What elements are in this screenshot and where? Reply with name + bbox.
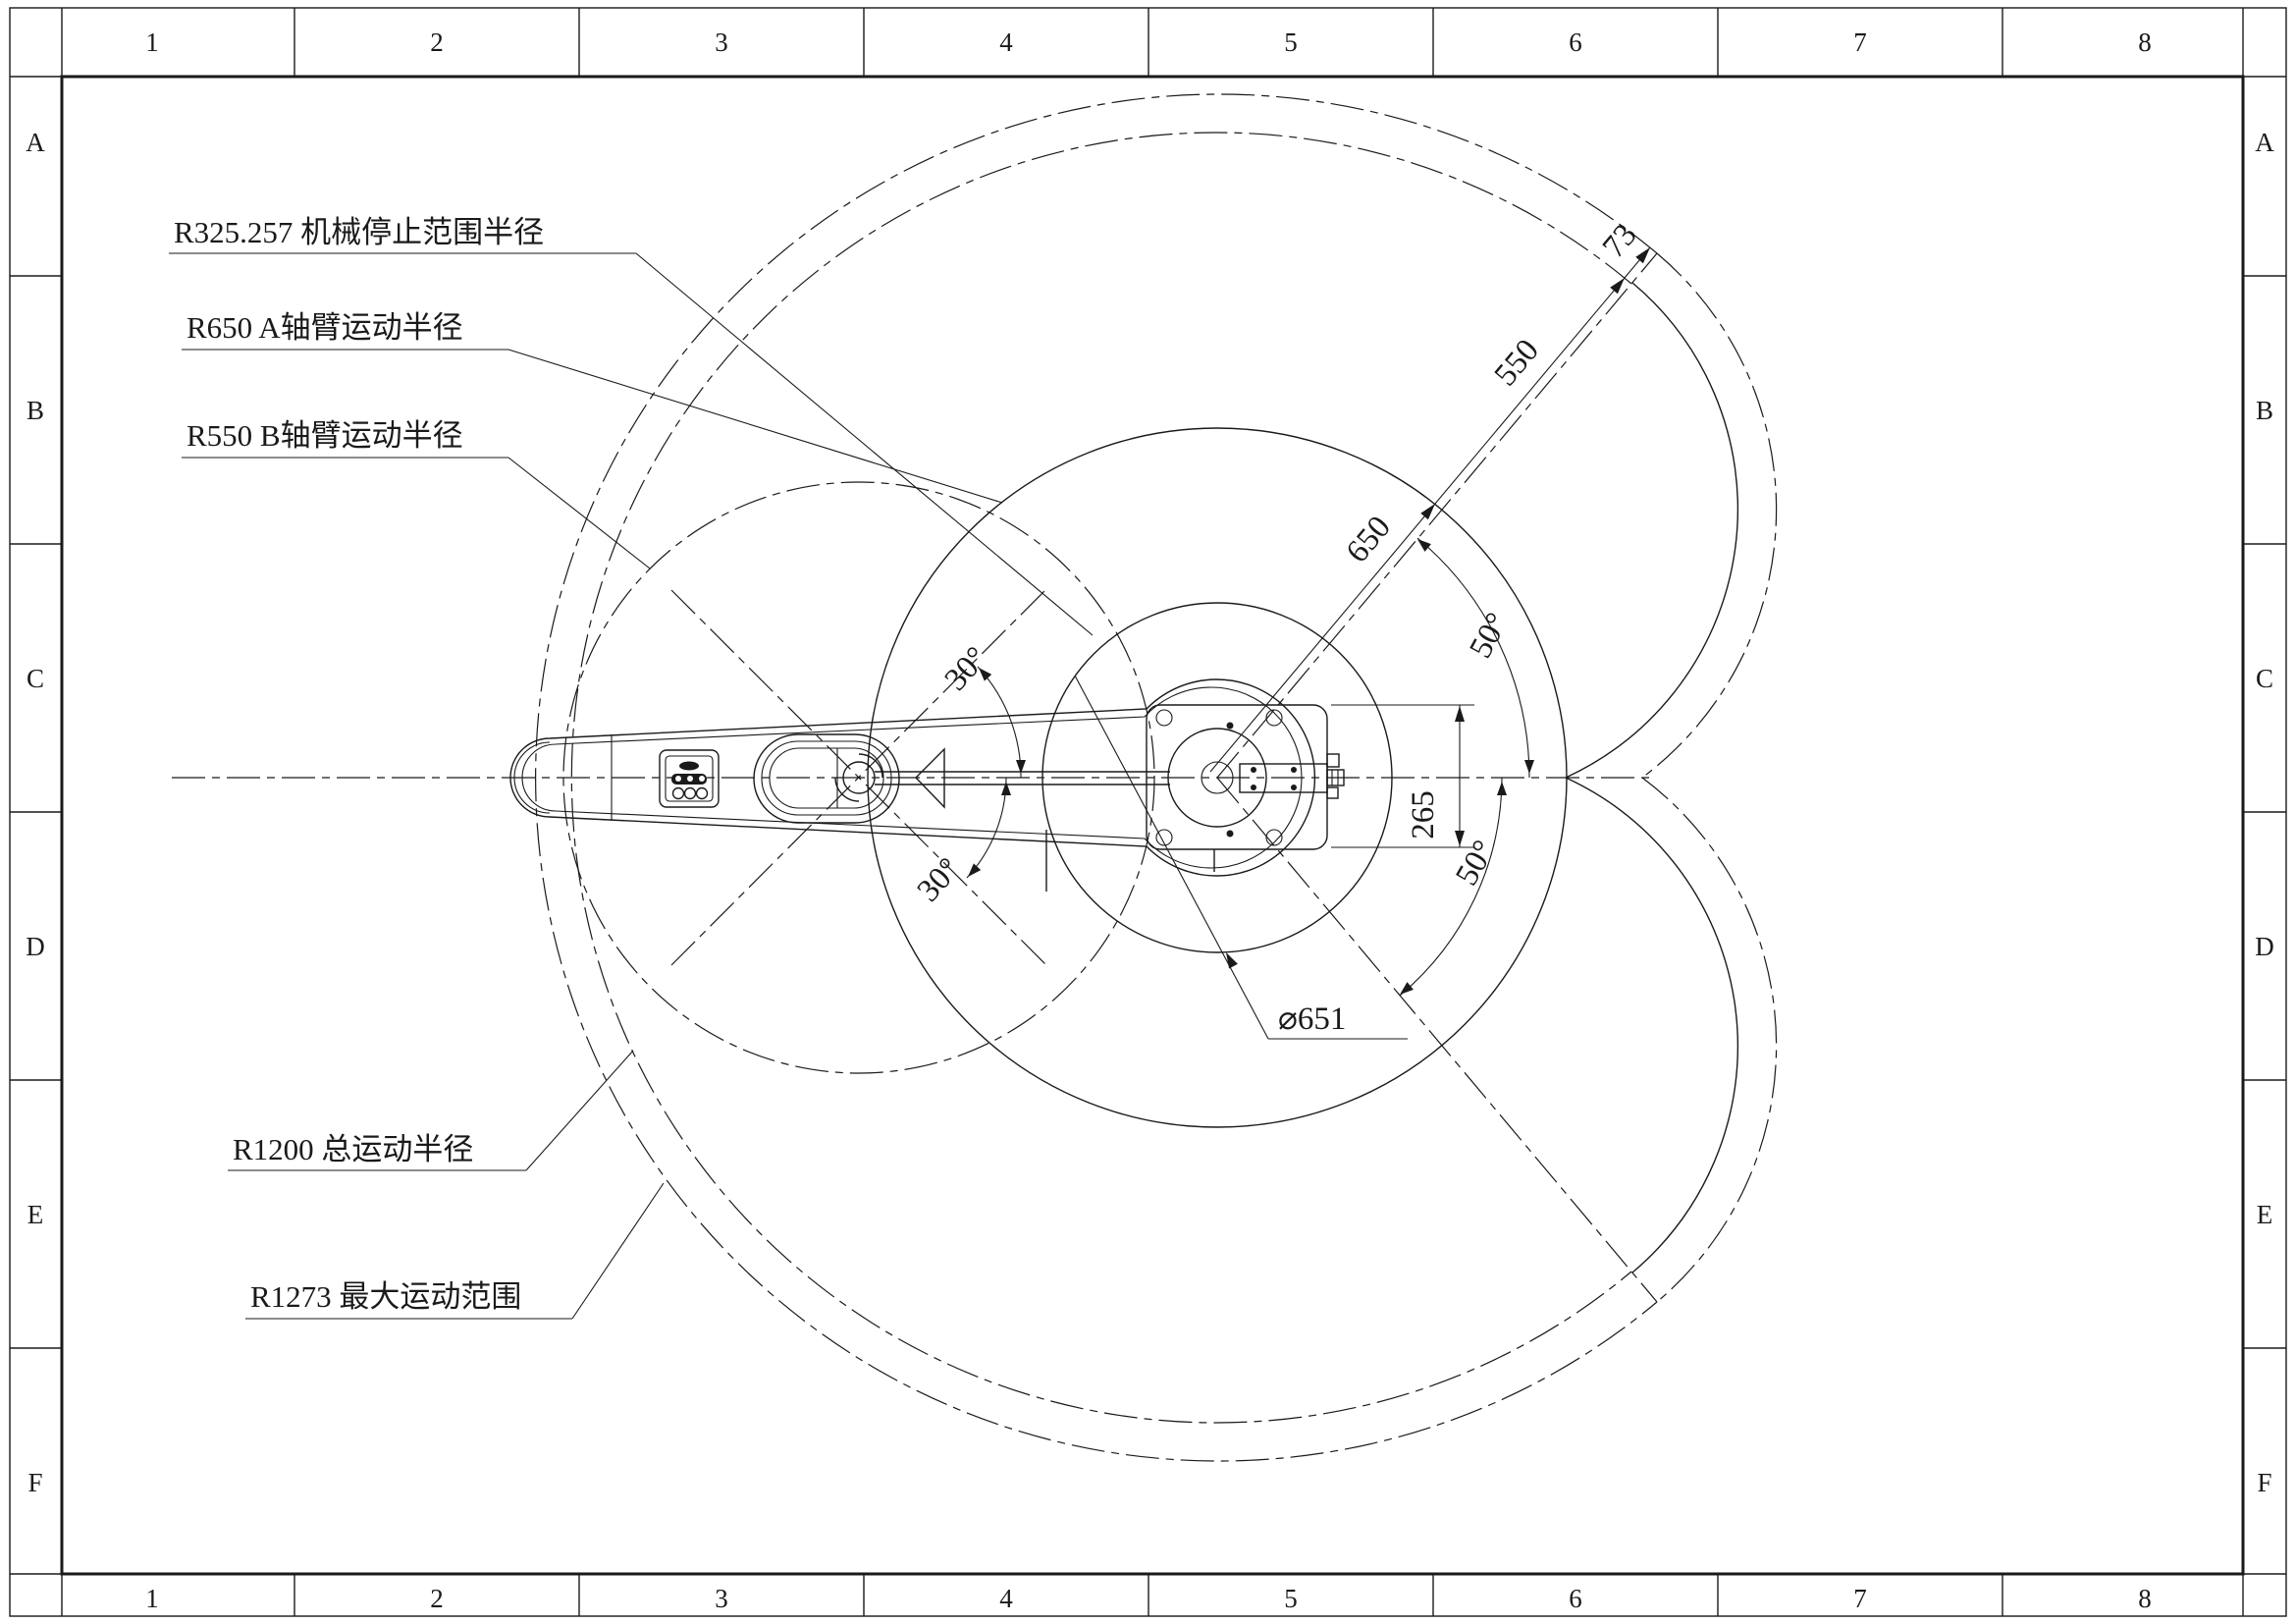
dimensions: 650 550 73 265 50° 50° [911,217,1654,998]
callout-a-arm-radius: R650 A轴臂运动半径 [182,310,1002,503]
grid-ref: F [27,1468,42,1497]
dim-265: 265 [1406,790,1441,839]
grid-ref: D [26,932,45,961]
angle-dimensions-30: 30° 30° [911,640,1026,908]
motion-envelope [172,94,1777,1461]
dim-650: 650 [1340,510,1398,569]
grid-ref: 7 [1853,1584,1867,1613]
callout-text: R650 A轴臂运动半径 [187,310,463,345]
lobe-upper-outer [1642,253,1777,778]
grid-ref: D [2255,932,2274,961]
grid-ref: 7 [1853,27,1867,57]
grid-ref: 3 [715,27,728,57]
lobe-upper-inner [1566,283,1737,778]
callout-text: R1200 总运动半径 [233,1132,473,1166]
grid-ref: 5 [1284,1584,1298,1613]
grid-ref: 5 [1284,27,1298,57]
grid-ref: 1 [145,27,159,57]
lobe-lower-inner [1566,778,1737,1272]
grid-ref: 4 [999,1584,1013,1613]
grid-ref: B [27,396,44,425]
angle-upper-50: 50° [1463,607,1515,664]
callout-max-range: R1273 最大运动范围 [245,1183,664,1319]
base-plate [1147,705,1327,872]
grid-ref: 1 [145,1584,159,1613]
grid-ref: C [27,664,44,693]
grid-ref: E [2257,1200,2273,1229]
grid-ref: E [27,1200,44,1229]
base-width-dimension: 265 [1331,705,1474,847]
callout-b-arm-radius: R550 B轴臂运动半径 [182,418,650,568]
panel-slot-icon [679,762,699,771]
drawing-sheet: 1 2 3 4 5 6 7 8 1 2 3 4 5 6 7 8 A B C D … [0,0,2296,1624]
grid-ref: F [2257,1468,2271,1497]
grid-ref: 2 [430,27,444,57]
panel-connector-icon [697,788,708,799]
callout-text: ⌀651 [1278,1001,1346,1037]
grid-ref: 8 [2138,27,2152,57]
angle-dimensions-50: 50° 50° [1397,535,1534,999]
callout-total-radius: R1200 总运动半径 [228,1051,633,1170]
grid-ref: B [2256,396,2273,425]
panel-connector-icon [685,788,696,799]
grid-column-separators [294,8,2002,1616]
grid-ref: 4 [999,27,1013,57]
callout-text: R1273 最大运动范围 [250,1279,521,1314]
grid-ref: 6 [1569,1584,1582,1613]
grid-ref: 3 [715,1584,728,1613]
callout-labels: R325.257 机械停止范围半径 R650 A轴臂运动半径 R550 B轴臂运… [169,215,1408,1319]
robot-top-view [510,679,1344,892]
grid-ref: 8 [2138,1584,2152,1613]
base-bolt-hole [1156,710,1172,726]
grid-ref: 6 [1569,27,1582,57]
callout-text: R550 B轴臂运动半径 [187,418,463,453]
radial-upper-50 [1217,253,1657,778]
radial-lower-50 [1217,778,1657,1302]
panel-connector-icon [673,788,684,799]
grid-ref: 2 [430,1584,444,1613]
lobe-lower-outer [1642,778,1777,1302]
elbow-cover [754,734,899,823]
grid-ref: A [2255,128,2274,157]
dim-550: 550 [1488,333,1546,393]
callout-text: R325.257 机械停止范围半径 [174,215,544,249]
angle-lower-30: 30° [911,851,968,908]
radius-chain-dimension: 650 550 73 [1210,217,1654,772]
grid-ref: C [2256,664,2273,693]
drawing-canvas: 1 2 3 4 5 6 7 8 1 2 3 4 5 6 7 8 A B C D … [0,0,2296,1624]
callout-base-diameter: ⌀651 [1075,676,1408,1039]
connector-panel [660,750,719,807]
grid-ref: A [26,128,45,157]
